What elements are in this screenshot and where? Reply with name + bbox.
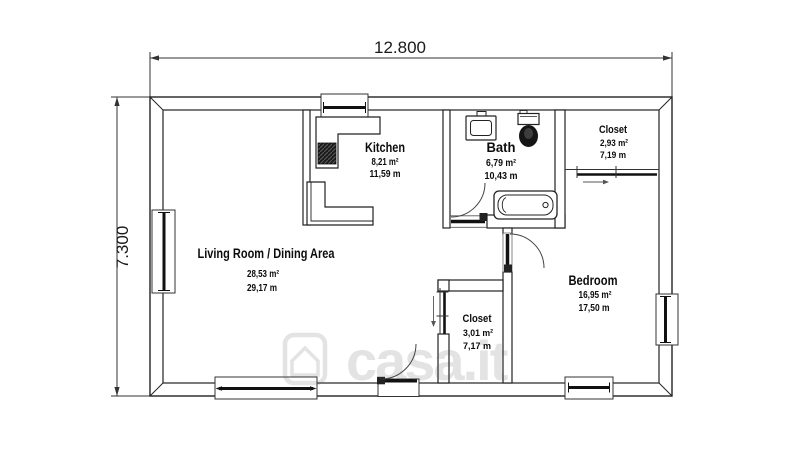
sliding-door-closet-bottom: [431, 288, 448, 334]
closet-bottom-perimeter: 7,17 m: [463, 341, 491, 352]
dimension-height-label: 7.300: [113, 226, 132, 269]
arrowhead-right-icon: [663, 55, 672, 60]
toilet: [518, 111, 539, 148]
bath-door-hinge: [480, 213, 488, 221]
arrowhead-left-icon: [150, 55, 159, 60]
kitchen-perimeter: 11,59 m: [370, 169, 401, 180]
cooktop: [318, 143, 336, 164]
sink: [466, 112, 496, 141]
window-bottom-living: [215, 377, 317, 399]
bedroom-perimeter: 17,50 m: [579, 303, 610, 314]
bath-perimeter: 10,43 m: [485, 171, 518, 182]
living-perimeter: 29,17 m: [247, 283, 277, 294]
closet-top-area: 2,93 m²: [600, 138, 628, 149]
closet-bottom-area: 3,01 m²: [463, 328, 493, 339]
kitchen-name: Kitchen: [365, 140, 405, 155]
bath-area: 6,79 m²: [486, 158, 517, 169]
room-label-closet-top: Closet 2,93 m² 7,19 m: [599, 124, 628, 161]
fixtures: [307, 111, 557, 226]
floor-plan: 12.800 7.300: [0, 0, 800, 450]
living-area: 28,53 m²: [247, 269, 280, 280]
room-label-closet-bottom: Closet 3,01 m² 7,17 m: [463, 313, 494, 352]
closet-top-perimeter: 7,19 m: [600, 150, 626, 161]
bedroom-name: Bedroom: [569, 273, 618, 288]
arrowhead-up-icon: [114, 97, 119, 106]
window-left: [152, 210, 175, 293]
bath-door: [450, 183, 488, 227]
room-label-bath: Bath 6,79 m² 10,43 m: [485, 140, 518, 182]
kitchen-area: 8,21 m²: [372, 157, 400, 168]
living-name: Living Room / Dining Area: [198, 246, 335, 261]
bedroom-door-arc: [510, 234, 544, 268]
slide-right-arrow-icon: [603, 180, 609, 185]
bath-door-arc: [451, 183, 485, 217]
slide-down-arrow-icon: [431, 321, 436, 327]
window-bottom-bedroom: [565, 377, 613, 399]
bath-name: Bath: [487, 140, 516, 155]
room-label-bedroom: Bedroom 16,95 m² 17,50 m: [569, 273, 618, 314]
bedroom-area: 16,95 m²: [579, 290, 613, 301]
floor-plan-canvas: 12.800 7.300: [0, 0, 800, 450]
watermark-house-glyph-icon: [292, 348, 318, 375]
window-right-bedroom: [656, 294, 678, 345]
bathtub: [494, 191, 557, 219]
bedroom-door-hinge: [504, 265, 512, 273]
sliding-door-closet-top: [565, 166, 659, 184]
arrowhead-down-icon: [114, 387, 119, 396]
room-label-living: Living Room / Dining Area 28,53 m² 29,17…: [198, 246, 335, 294]
dimension-width: [150, 52, 672, 99]
wall-bath-left: [443, 110, 450, 228]
room-label-kitchen: Kitchen 8,21 m² 11,59 m: [365, 140, 405, 180]
closet-bottom-name: Closet: [463, 313, 492, 325]
bedroom-door: [503, 233, 544, 273]
dimension-width-label: 12.800: [374, 38, 426, 57]
closet-top-name: Closet: [599, 124, 627, 136]
